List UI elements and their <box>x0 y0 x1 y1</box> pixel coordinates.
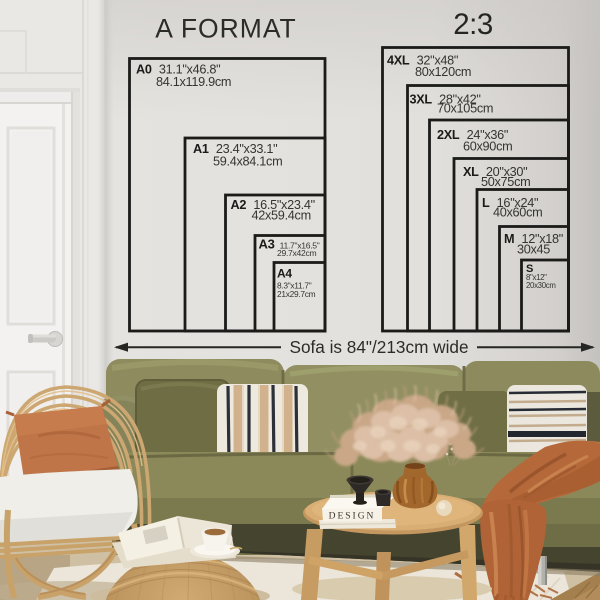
svg-text:80x120cm: 80x120cm <box>415 65 471 79</box>
svg-text:21x29.7cm: 21x29.7cm <box>277 289 316 299</box>
svg-text:DESIGN: DESIGN <box>329 512 376 522</box>
svg-text:A4: A4 <box>277 267 292 281</box>
svg-text:Sofa is 84"/213cm wide: Sofa is 84"/213cm wide <box>289 337 468 357</box>
svg-text:2:3: 2:3 <box>453 8 493 41</box>
svg-text:60x90cm: 60x90cm <box>463 140 512 154</box>
svg-text:50x75cm: 50x75cm <box>481 175 530 189</box>
svg-text:40x60cm: 40x60cm <box>493 206 542 220</box>
svg-text:A FORMAT: A FORMAT <box>155 14 296 44</box>
svg-text:59.4x84.1cm: 59.4x84.1cm <box>213 154 282 168</box>
svg-text:30x45: 30x45 <box>517 242 550 256</box>
svg-text:70x105cm: 70x105cm <box>437 102 493 116</box>
svg-text:29.7x42cm: 29.7x42cm <box>277 248 316 258</box>
svg-text:20x30cm: 20x30cm <box>526 281 556 290</box>
svg-text:42x59.4cm: 42x59.4cm <box>252 209 311 223</box>
svg-text:84.1x119.9cm: 84.1x119.9cm <box>156 75 231 89</box>
